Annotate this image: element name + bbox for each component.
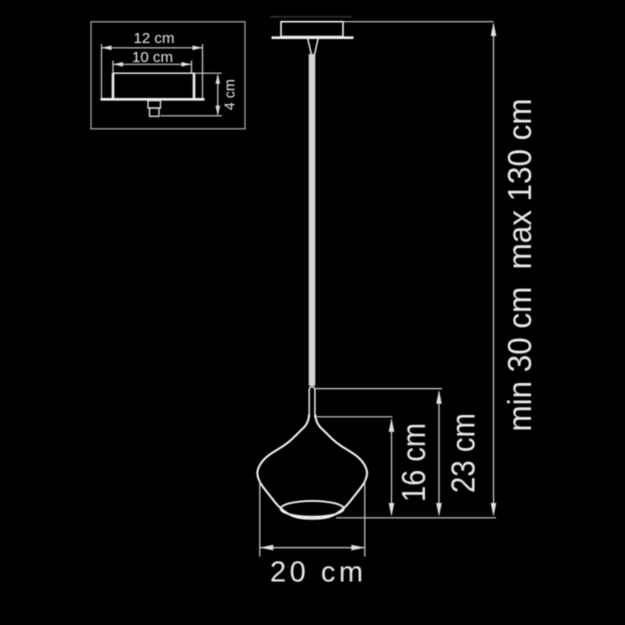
svg-text:min 30 cm max 130 cm: min 30 cm max 130 cm	[501, 99, 538, 432]
svg-text:20 cm: 20 cm	[270, 557, 363, 589]
svg-text:10 cm: 10 cm	[132, 49, 173, 66]
svg-text:23 cm: 23 cm	[445, 413, 482, 493]
svg-text:12 cm: 12 cm	[134, 30, 175, 47]
svg-text:4 cm: 4 cm	[222, 79, 239, 110]
svg-text:16 cm: 16 cm	[395, 423, 432, 502]
